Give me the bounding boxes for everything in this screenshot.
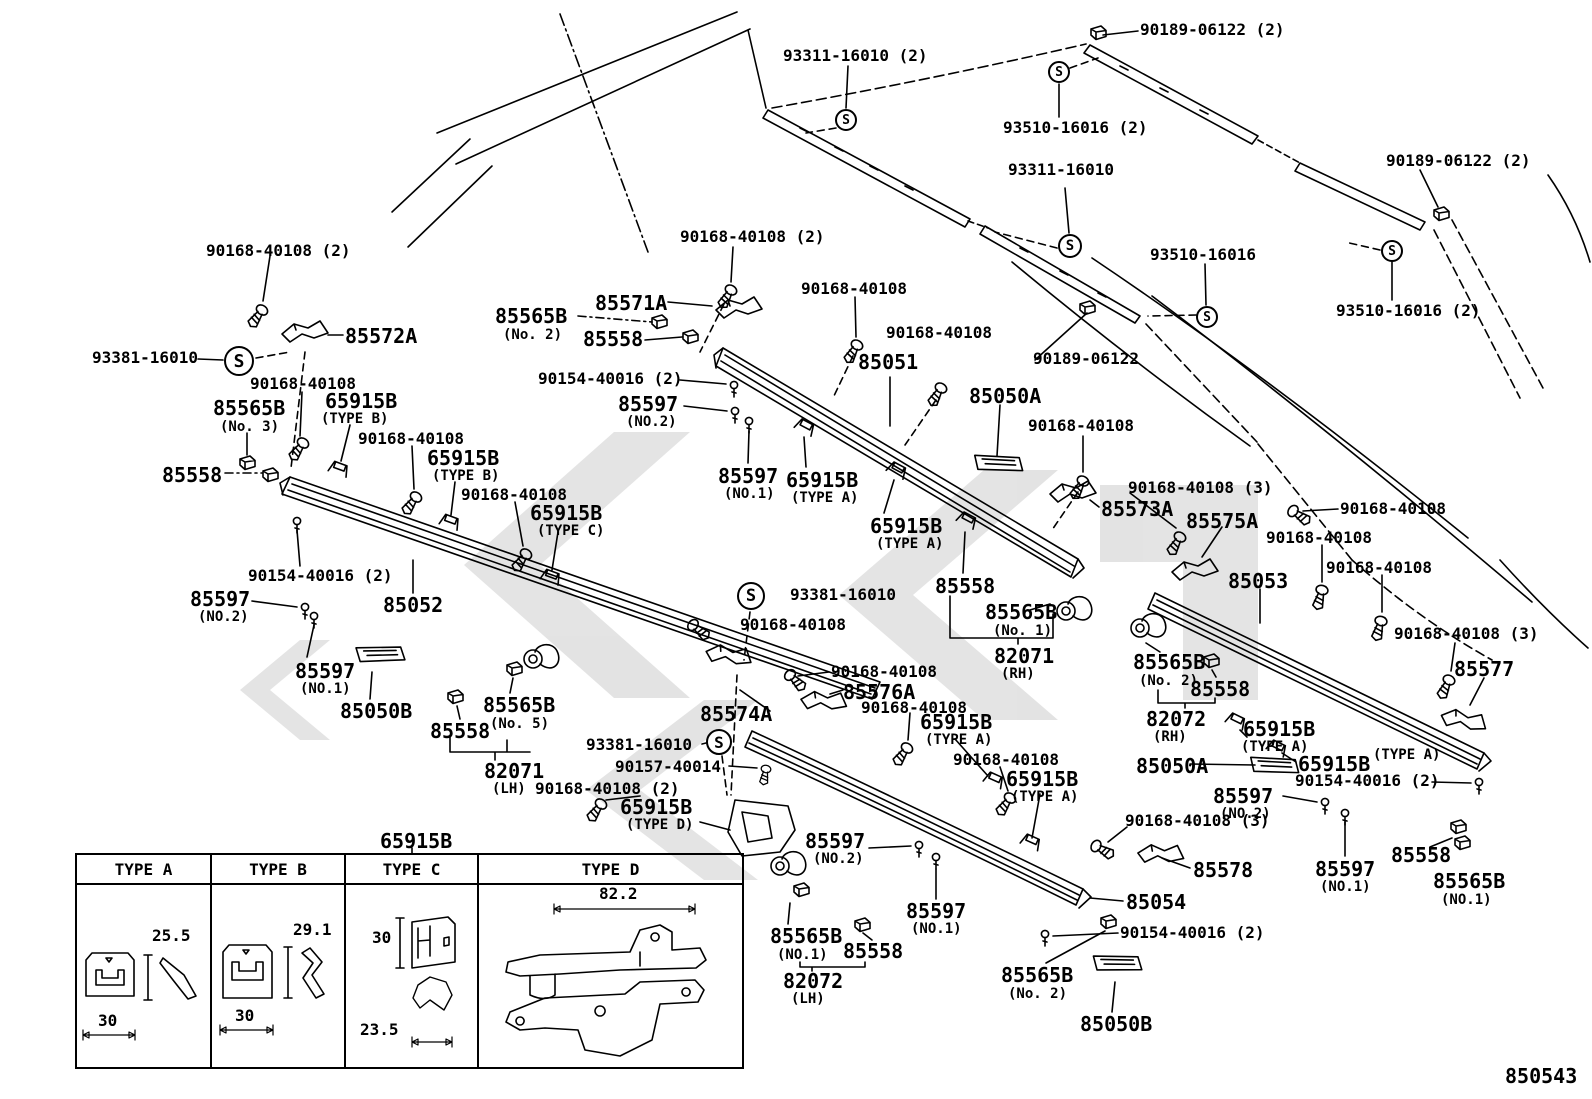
table-header-type-b: TYPE B bbox=[212, 855, 346, 883]
part-label: (TYPE B) bbox=[321, 412, 388, 426]
part-label: 85577 bbox=[1454, 659, 1514, 679]
part-label: 90168-40108 bbox=[1340, 501, 1446, 517]
table-header-type-a: TYPE A bbox=[77, 855, 212, 883]
part-label: 90168-40108 bbox=[1028, 418, 1134, 434]
dim-type-b-height: 29.1 bbox=[293, 922, 332, 938]
part-label: 90168-40108 bbox=[831, 664, 937, 680]
part-label: 65915B bbox=[325, 391, 397, 411]
part-label: 85565B bbox=[213, 398, 285, 418]
part-label: (NO.1) bbox=[300, 682, 351, 696]
standard-part-s-mark: S bbox=[1058, 234, 1082, 258]
part-label: (TYPE A) bbox=[1373, 748, 1440, 762]
part-label: 93381-16010 bbox=[790, 587, 896, 603]
part-label: 85558 bbox=[843, 941, 903, 961]
part-label: 90168-40108 bbox=[740, 617, 846, 633]
part-label: 90154-40016 (2) bbox=[1120, 925, 1265, 941]
part-label: 82071 bbox=[994, 646, 1054, 666]
part-label: (TYPE A) bbox=[925, 733, 992, 747]
dim-type-b-width: 30 bbox=[235, 1008, 254, 1024]
part-label: 85597 bbox=[906, 901, 966, 921]
standard-part-s-mark: S bbox=[224, 346, 254, 376]
part-label: 85050B bbox=[340, 701, 412, 721]
part-label: 90168-40108 bbox=[358, 431, 464, 447]
part-label: 85597 bbox=[805, 831, 865, 851]
part-label: 85575A bbox=[1186, 511, 1258, 531]
part-label: (No. 2) bbox=[503, 328, 562, 342]
dim-type-a-width: 30 bbox=[98, 1013, 117, 1029]
part-label: 90157-40014 bbox=[615, 759, 721, 775]
part-label: 85597 bbox=[295, 661, 355, 681]
part-label: 85558 bbox=[583, 329, 643, 349]
part-label: 65915B bbox=[427, 448, 499, 468]
clip-type-table: TYPE A TYPE B TYPE C TYPE D bbox=[75, 853, 744, 1069]
part-label: 82072 bbox=[783, 971, 843, 991]
part-label: (NO.1) bbox=[777, 948, 828, 962]
dim-type-a-height: 25.5 bbox=[152, 928, 191, 944]
part-label: 90189-06122 bbox=[1033, 351, 1139, 367]
part-label: 93510-16016 (2) bbox=[1336, 303, 1481, 319]
part-label: 85573A bbox=[1101, 499, 1173, 519]
part-label: 85558 bbox=[162, 465, 222, 485]
part-label: 65915B bbox=[1006, 769, 1078, 789]
part-label: 65915B bbox=[620, 797, 692, 817]
part-label: 85565B bbox=[770, 926, 842, 946]
part-label: 85578 bbox=[1193, 860, 1253, 880]
part-label: (NO.1) bbox=[724, 487, 775, 501]
part-label: 85571A bbox=[595, 293, 667, 313]
part-label: 85558 bbox=[1391, 845, 1451, 865]
standard-part-s-mark: S bbox=[1381, 240, 1403, 262]
part-label: 90168-40108 (3) bbox=[1128, 480, 1273, 496]
part-label: 85051 bbox=[858, 352, 918, 372]
part-label: 65915B bbox=[786, 470, 858, 490]
part-label: (NO.2) bbox=[813, 852, 864, 866]
part-label: 85574A bbox=[700, 704, 772, 724]
part-label: (TYPE D) bbox=[626, 818, 693, 832]
part-label: 65915B bbox=[870, 516, 942, 536]
part-label: (NO.2) bbox=[626, 415, 677, 429]
part-label: (RH) bbox=[1001, 667, 1035, 681]
part-label: 85565B bbox=[1433, 871, 1505, 891]
part-label: 93311-16010 bbox=[1008, 162, 1114, 178]
part-label: 65915B bbox=[380, 831, 452, 851]
part-label: 90154-40016 (2) bbox=[1295, 773, 1440, 789]
part-label: (LH) bbox=[492, 782, 526, 796]
dim-type-c-height: 30 bbox=[372, 930, 391, 946]
part-label: 85572A bbox=[345, 326, 417, 346]
part-label: 93510-16016 (2) bbox=[1003, 120, 1148, 136]
part-label: 90154-40016 (2) bbox=[248, 568, 393, 584]
part-label: (TYPE A) bbox=[1011, 790, 1078, 804]
part-label: (NO.1) bbox=[1441, 893, 1492, 907]
part-label: (TYPE A) bbox=[791, 491, 858, 505]
part-label: 85597 bbox=[190, 589, 250, 609]
part-label: 90154-40016 (2) bbox=[538, 371, 683, 387]
standard-part-s-mark: S bbox=[1196, 306, 1218, 328]
part-label: (No. 2) bbox=[1008, 987, 1067, 1001]
type-d-part bbox=[728, 800, 795, 856]
part-label: 85597 bbox=[718, 466, 778, 486]
part-label: (NO.1) bbox=[1320, 880, 1371, 894]
dim-type-c-width: 23.5 bbox=[360, 1022, 399, 1038]
part-label: 90168-40108 (3) bbox=[1394, 626, 1539, 642]
part-label: 90168-40108 bbox=[1326, 560, 1432, 576]
table-header-type-c: TYPE C bbox=[346, 855, 479, 883]
part-label: 90189-06122 (2) bbox=[1386, 153, 1531, 169]
part-label: 85565B bbox=[483, 695, 555, 715]
part-label: (No. 3) bbox=[220, 420, 279, 434]
part-label: 90189-06122 (2) bbox=[1140, 22, 1285, 38]
part-label: 93381-16010 bbox=[586, 737, 692, 753]
part-label: (TYPE A) bbox=[876, 537, 943, 551]
part-label: (No. 5) bbox=[490, 717, 549, 731]
part-label: 85050B bbox=[1080, 1014, 1152, 1034]
part-label: 90168-40108 (2) bbox=[206, 243, 351, 259]
part-label: 85052 bbox=[383, 595, 443, 615]
standard-part-s-mark: S bbox=[1048, 61, 1070, 83]
part-label: 85597 bbox=[1315, 859, 1375, 879]
part-label: 85597 bbox=[618, 394, 678, 414]
part-label: 85565B bbox=[985, 602, 1057, 622]
part-label: 85558 bbox=[1190, 679, 1250, 699]
part-label: 85558 bbox=[430, 721, 490, 741]
part-label: 85054 bbox=[1126, 892, 1186, 912]
part-label: 85565B bbox=[1133, 652, 1205, 672]
part-label: (LH) bbox=[791, 992, 825, 1006]
standard-part-s-mark: S bbox=[737, 582, 765, 610]
part-label: 90168-40108 (3) bbox=[1125, 813, 1270, 829]
part-label: 82071 bbox=[484, 761, 544, 781]
part-label: (RH) bbox=[1153, 730, 1187, 744]
part-label: (NO.2) bbox=[198, 610, 249, 624]
part-label: (TYPE B) bbox=[432, 469, 499, 483]
part-label: 85053 bbox=[1228, 571, 1288, 591]
part-label: 90168-40108 bbox=[886, 325, 992, 341]
part-label: 90168-40108 bbox=[801, 281, 907, 297]
parts-diagram-page: 90189-06122 (2)93311-16010 (2)93510-1601… bbox=[0, 0, 1592, 1099]
standard-part-s-mark: S bbox=[706, 729, 732, 755]
figure-number: 850543 bbox=[1505, 1066, 1577, 1086]
part-label: 93381-16010 bbox=[92, 350, 198, 366]
part-label: 65915B bbox=[530, 503, 602, 523]
part-label: 93510-16016 bbox=[1150, 247, 1256, 263]
table-header-type-d: TYPE D bbox=[479, 855, 742, 883]
part-label: (NO.1) bbox=[911, 922, 962, 936]
part-label: 82072 bbox=[1146, 709, 1206, 729]
dim-type-d-width: 82.2 bbox=[599, 886, 638, 902]
part-label: 90168-40108 bbox=[953, 752, 1059, 768]
part-label: 85050A bbox=[1136, 756, 1208, 776]
part-label: (TYPE C) bbox=[537, 524, 604, 538]
part-label: 85565B bbox=[1001, 965, 1073, 985]
part-label: 65915B bbox=[920, 712, 992, 732]
part-label: 90168-40108 bbox=[1266, 530, 1372, 546]
part-label: 93311-16010 (2) bbox=[783, 48, 928, 64]
part-label: 85565B bbox=[495, 306, 567, 326]
part-label: 65915B bbox=[1243, 719, 1315, 739]
part-label: 90168-40108 (2) bbox=[680, 229, 825, 245]
part-label: 85050A bbox=[969, 386, 1041, 406]
standard-part-s-mark: S bbox=[835, 109, 857, 131]
part-label: 85558 bbox=[935, 576, 995, 596]
part-label: 85597 bbox=[1213, 786, 1273, 806]
part-label: (No. 1) bbox=[993, 624, 1052, 638]
